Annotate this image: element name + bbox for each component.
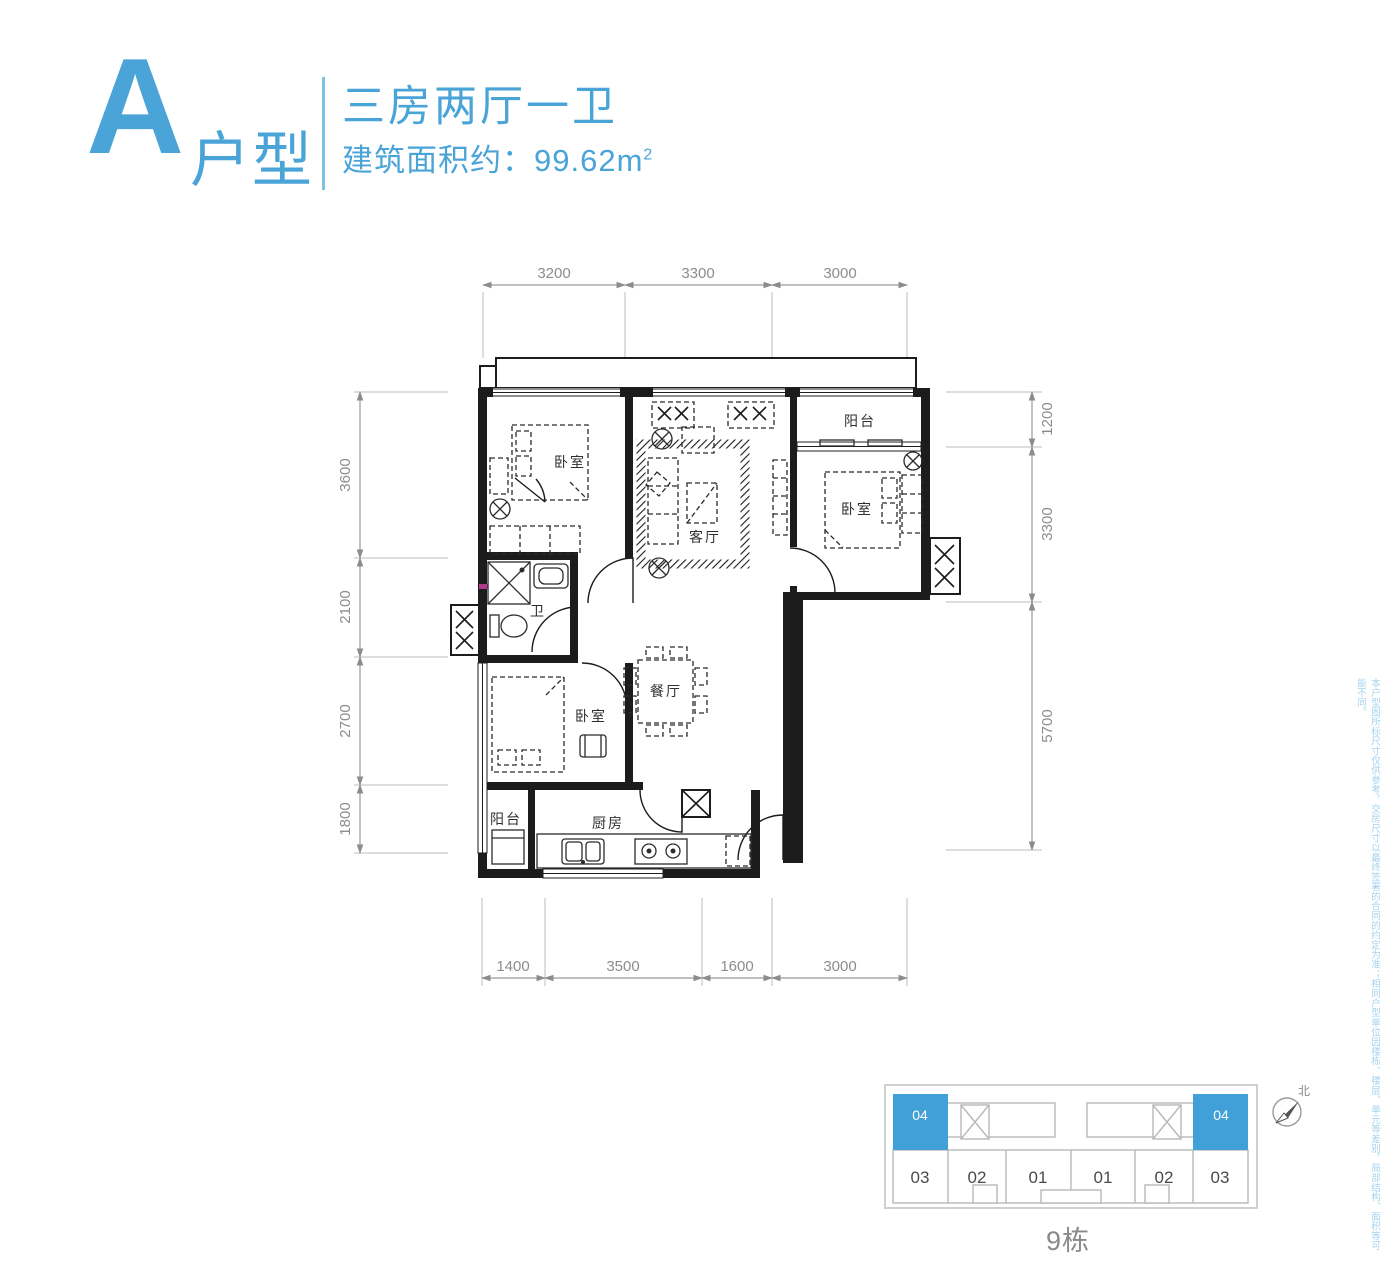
room-bedroom-right: 卧室	[841, 501, 873, 517]
room-dining: 餐厅	[650, 683, 682, 699]
compass-icon: 北	[1273, 1084, 1310, 1126]
dim-left-1: 3600	[337, 458, 354, 491]
title-divider	[322, 77, 325, 190]
dim-bottom-4: 3000	[823, 958, 856, 975]
dimension-chain-bottom: 1400 3500 1600 3000	[482, 958, 907, 978]
window-left-rail	[478, 663, 487, 853]
north-label: 北	[1298, 1084, 1310, 1098]
dim-right-3: 5700	[1039, 709, 1056, 742]
keyplan-highlight-left: 04	[893, 1094, 948, 1150]
dimension-chain-left: 3600 2100 2700 1800	[337, 392, 360, 853]
room-bedroom-top-left: 卧室	[554, 454, 586, 470]
dim-left-3: 2700	[337, 704, 354, 737]
window-kitchen-bottom	[543, 869, 663, 878]
keyplan-unit-04-left: 04	[912, 1107, 928, 1123]
window-top-bedroom	[493, 388, 620, 397]
dimension-chain-right: 1200 3300 5700	[1032, 392, 1056, 850]
ac-unit-left	[451, 605, 479, 655]
dimension-chain-top: 3200 3300 3000	[483, 265, 907, 285]
area-value: 建筑面积约：99.62m	[342, 143, 643, 178]
window-top-balcony	[800, 388, 913, 397]
pipe-shaft	[682, 790, 710, 817]
building-label: 9栋	[1046, 1226, 1090, 1256]
room-living: 客厅	[689, 529, 721, 545]
floor-plan: 3200 3300 3000 1400 3500 1600 3000 3600 …	[330, 250, 1060, 1010]
room-balcony-bottom: 阳台	[490, 811, 522, 827]
unit-type-letter: A	[86, 38, 184, 174]
keyplan-unit-03-left: 03	[911, 1168, 930, 1187]
dim-top-3: 3000	[823, 265, 856, 282]
layout-title: 三房两厅一卫	[342, 72, 618, 134]
keyplan-unit-02-left: 02	[968, 1168, 987, 1187]
area-text: 建筑面积约：99.62m2	[342, 135, 653, 180]
area-exponent: 2	[643, 147, 653, 164]
room-labels: 卧室 客厅 阳台 卧室 卫 餐厅 卧室 厨房 阳台	[490, 413, 876, 831]
keyplan-unit-03-right: 03	[1211, 1168, 1230, 1187]
room-bedroom-bottom: 卧室	[575, 708, 607, 724]
dim-left-4: 1800	[337, 802, 354, 835]
building-key-plan: 04 04 03 02 01 01 02 03 9栋 北	[875, 1075, 1345, 1275]
keyplan-unit-01-left: 01	[1029, 1168, 1048, 1187]
title-block: A 户型 三房两厅一卫 建筑面积约：99.62m2	[86, 52, 706, 202]
dim-top-2: 3300	[681, 265, 714, 282]
dim-bottom-2: 3500	[606, 958, 639, 975]
ac-unit-right	[930, 538, 960, 594]
dim-left-2: 2100	[337, 590, 354, 623]
keyplan-unit-02-right: 02	[1155, 1168, 1174, 1187]
ac-platform-top-2	[728, 402, 774, 428]
dim-bottom-1: 1400	[496, 958, 529, 975]
ac-platform-top-1	[652, 402, 694, 428]
dim-right-2: 3300	[1039, 507, 1056, 540]
dim-top-1: 3200	[537, 265, 570, 282]
room-bathroom: 卫	[530, 603, 546, 619]
dim-bottom-3: 1600	[720, 958, 753, 975]
room-balcony-top: 阳台	[844, 413, 876, 429]
keyplan-unit-01-right: 01	[1094, 1168, 1113, 1187]
unit-type-suffix: 户型	[190, 112, 314, 199]
dim-right-1: 1200	[1039, 402, 1056, 435]
window-top-living	[653, 388, 785, 397]
window-balcony-bedroom-right	[797, 440, 921, 451]
room-kitchen: 厨房	[592, 815, 624, 831]
keyplan-highlight-right: 04	[1193, 1094, 1248, 1150]
keyplan-unit-04-right: 04	[1213, 1107, 1229, 1123]
disclaimer-text: 本户型图所标尺寸仅供参考，交房尺寸以最终签署的合同的约定为准；相同户型单位因楼栋…	[1353, 678, 1381, 1253]
